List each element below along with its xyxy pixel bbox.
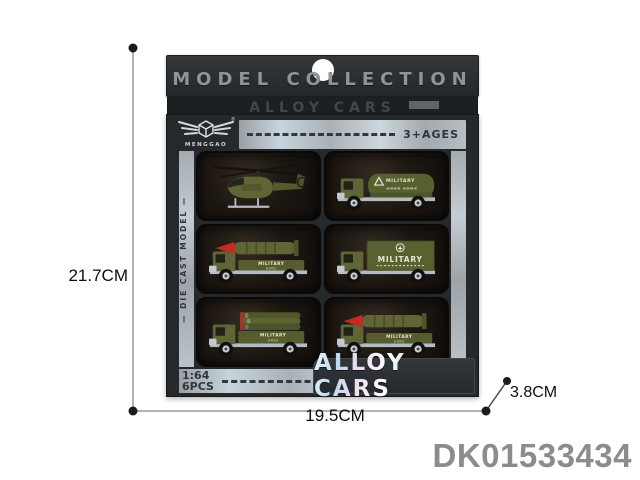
- winged-cube-icon: [175, 118, 237, 142]
- brand-logo: ® MENGGAO: [175, 118, 237, 152]
- age-label: 3+AGES: [403, 128, 459, 141]
- blister-cell-missile-truck: MILITARY JH003: [196, 224, 321, 294]
- registered-mark: ®: [231, 117, 235, 123]
- pipe-transport-truck: MILITARY JH003: [198, 299, 319, 365]
- missile-truck-2-marking: JH003: [393, 339, 404, 343]
- banner-title: ALLOY CARS: [314, 350, 474, 402]
- missile-launcher-truck: MILITARY JH003: [198, 226, 319, 292]
- product-code: DK01533434: [420, 437, 632, 475]
- package-top-flap: ALLOY CARS: [167, 97, 478, 114]
- top-strip: 3+AGES: [239, 120, 466, 149]
- military-cargo-truck: ✚ MILITARY: [326, 226, 447, 292]
- product-photo: MODEL COLLECTION ALLOY CARS: [0, 0, 640, 480]
- flap-sticker: [409, 101, 439, 109]
- brand-name: MENGGAO: [175, 142, 237, 148]
- missile-truck-marking: JH003: [265, 266, 276, 270]
- alloy-cars-banner: ALLOY CARS: [313, 358, 475, 394]
- military-tanker-truck: MILITARY «««« ««««: [326, 153, 447, 219]
- pcs-label: 6PCS: [182, 381, 214, 392]
- blister-cell-cargo-truck: ✚ MILITARY: [324, 224, 449, 294]
- width-dimension: 19.5CM: [285, 406, 385, 426]
- die-cast-label: — DIE CAST MODEL —: [179, 151, 194, 367]
- left-strip: — DIE CAST MODEL —: [179, 151, 194, 367]
- pipe-truck-marking: JH003: [267, 338, 278, 342]
- height-dimension: 21.7CM: [40, 266, 128, 286]
- tanker-label: MILITARY: [386, 178, 415, 184]
- cargo-truck-label: MILITARY: [378, 255, 423, 264]
- depth-dimension: 3.8CM: [510, 384, 557, 402]
- cargo-truck-emblem: ✚: [398, 246, 403, 253]
- scale-pcs-block: 1:64 6PCS: [182, 370, 214, 392]
- package-front: ® MENGGAO 3+AGES — DIE CAST MODEL —: [166, 114, 479, 397]
- military-helicopter: [198, 153, 319, 219]
- blister-cell-helicopter: [196, 151, 321, 221]
- vehicle-grid: MILITARY «««« ««««: [196, 151, 449, 367]
- header-title: MODEL COLLECTION: [167, 69, 478, 90]
- package-header: MODEL COLLECTION: [166, 55, 479, 97]
- right-strip: [451, 151, 466, 367]
- tanker-marking: «««« ««««: [386, 186, 417, 192]
- blister-cell-pipe-truck: MILITARY JH003: [196, 297, 321, 367]
- blister-cell-tanker: MILITARY «««« ««««: [324, 151, 449, 221]
- dashed-rule: [247, 133, 395, 136]
